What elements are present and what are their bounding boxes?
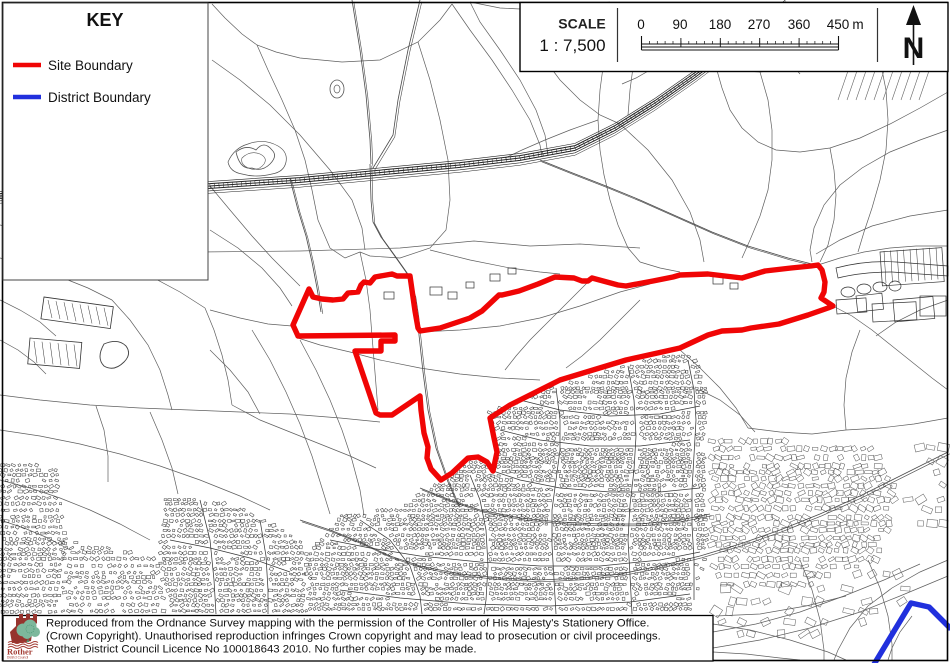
svg-text:180: 180: [709, 17, 732, 32]
svg-text:m: m: [852, 17, 863, 32]
svg-text:Reproduced from the Ordnance S: Reproduced from the Ordnance Survey mapp…: [46, 618, 649, 630]
svg-text:District Boundary: District Boundary: [48, 90, 151, 105]
svg-text:Site Boundary: Site Boundary: [48, 58, 133, 73]
svg-text:SCALE: SCALE: [558, 16, 605, 32]
svg-text:1 : 7,500: 1 : 7,500: [539, 36, 605, 55]
svg-text:KEY: KEY: [86, 10, 123, 30]
svg-text:N: N: [903, 32, 925, 65]
svg-text:District Council: District Council: [7, 656, 29, 660]
svg-text:90: 90: [672, 17, 687, 32]
svg-text:450: 450: [827, 17, 850, 32]
svg-text:360: 360: [788, 17, 811, 32]
svg-text:Rother District Council Licenc: Rother District Council Licence No 10001…: [46, 644, 477, 656]
svg-text:0: 0: [637, 17, 645, 32]
svg-text:(Crown Copyright). Unauthorise: (Crown Copyright). Unauthorised reproduc…: [46, 631, 661, 643]
svg-text:270: 270: [748, 17, 771, 32]
